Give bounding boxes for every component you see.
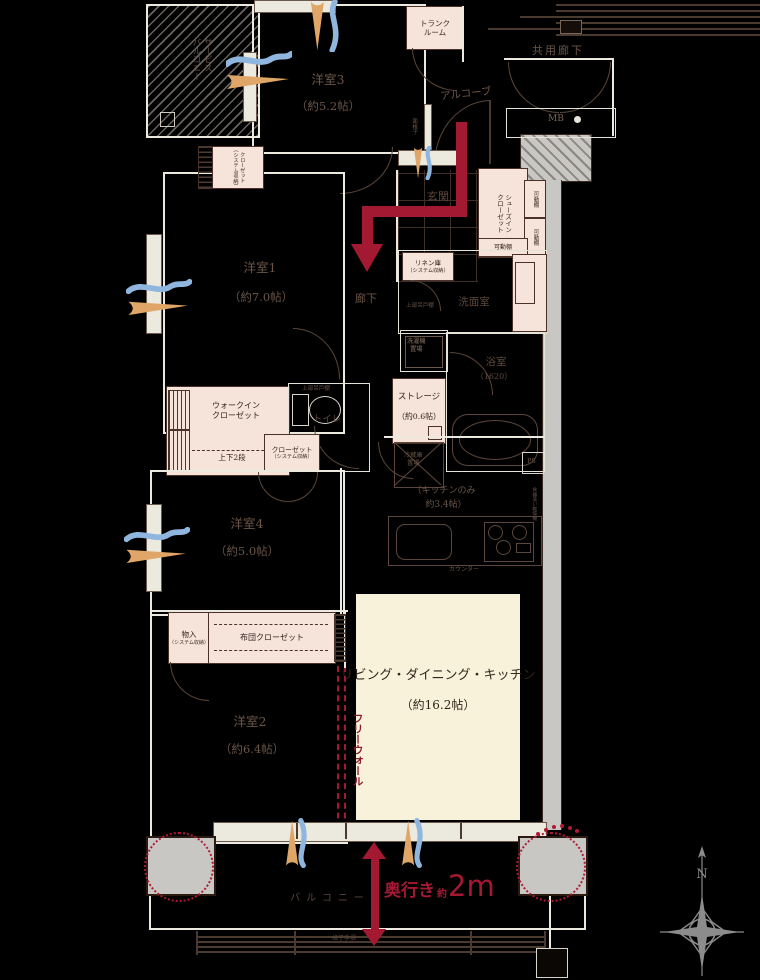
floor-plan: サービス バルコニー 洋室3 （約5.2帖） トランク ルーム 共用廊下 MB … bbox=[0, 0, 760, 980]
ldk-size: （約16.2帖） bbox=[401, 698, 476, 714]
yoshitsu3-size: （約5.2帖） bbox=[296, 99, 360, 114]
bathroom-label: 浴室 bbox=[486, 356, 507, 370]
wic-label-1: ウォークイン bbox=[212, 401, 260, 410]
yoshitsu4-size: （約5.0帖） bbox=[215, 544, 279, 559]
lower-box bbox=[536, 948, 568, 978]
linen-label: リネン庫 bbox=[415, 259, 441, 267]
corridor-line bbox=[556, 34, 760, 36]
wind-arrow-up-icon bbox=[390, 818, 428, 868]
ps-label: PS bbox=[527, 457, 536, 465]
red-dot bbox=[552, 825, 556, 829]
counter-label: カウンター bbox=[449, 566, 479, 574]
wind-arrow-up-icon bbox=[274, 818, 312, 868]
closet-label: クローゼット bbox=[239, 147, 245, 189]
mb-label: MB bbox=[548, 114, 564, 126]
wall bbox=[340, 468, 342, 614]
fridge-label-2: 置場 bbox=[407, 460, 419, 467]
wall bbox=[504, 58, 614, 60]
closet-toilet-side: クローゼット （システム収納） bbox=[264, 434, 320, 472]
kadodana-label: 可動棚 bbox=[532, 229, 539, 246]
corridor-line bbox=[556, 10, 760, 12]
stove-grill bbox=[516, 543, 531, 553]
depth-label-value: 2m bbox=[448, 868, 495, 906]
closet-room3: クローゼット （システム収納） bbox=[212, 146, 264, 189]
closet-sys-label: （システム収納） bbox=[271, 454, 312, 460]
railing-line bbox=[196, 951, 545, 953]
compass-north-label: N bbox=[696, 867, 707, 882]
kitchen-size-line1: （キッチンのみ bbox=[412, 486, 475, 498]
yoshitsu1-name: 洋室1 bbox=[244, 260, 277, 276]
balcony-sliding-doors bbox=[213, 822, 547, 842]
corridor-line bbox=[556, 22, 760, 24]
wall bbox=[462, 6, 464, 62]
pillar-circle-left bbox=[144, 832, 214, 902]
closet-hatch bbox=[198, 146, 213, 189]
wind-arrow-right-icon bbox=[124, 524, 190, 566]
ldk-name: リビング・ダイニング・キッチン bbox=[340, 668, 535, 685]
genkan-label: 玄関 bbox=[427, 190, 449, 204]
kadodana-label: 可動棚 bbox=[532, 191, 539, 208]
wic-shelf-1 bbox=[168, 390, 190, 430]
corridor-line bbox=[520, 16, 760, 18]
yoshitsu3-door-arc bbox=[340, 147, 393, 194]
jogedan-label: 上下2段 bbox=[218, 453, 245, 463]
futon-dash-1 bbox=[214, 624, 328, 625]
storage-label: ストレージ bbox=[398, 392, 440, 402]
red-dot bbox=[575, 829, 579, 833]
kyoyo-roka-label: 共用廊下 bbox=[532, 44, 584, 58]
fridge-label: 冷蔵庫 置場 bbox=[404, 452, 423, 468]
railing-tick bbox=[470, 931, 472, 955]
trunk-room-label-2: ルーム bbox=[424, 28, 446, 37]
red-dot bbox=[536, 832, 540, 836]
kitchen-sink bbox=[396, 524, 452, 560]
depth-arrow-head-up bbox=[362, 842, 386, 859]
mb-dot bbox=[574, 116, 581, 123]
monoire-box: 物入 （システム収納） bbox=[168, 612, 210, 664]
linen-sys-label: （システム収納） bbox=[407, 268, 448, 274]
washroom-label: 洗面室 bbox=[458, 296, 490, 310]
balcony-label: バルコニー bbox=[290, 892, 370, 905]
wall bbox=[549, 894, 551, 950]
stove-burner bbox=[488, 525, 503, 540]
yoshitsu1-size: （約7.0帖） bbox=[229, 290, 293, 305]
service-balcony-label: サービス バルコニー bbox=[186, 38, 216, 108]
laundry-label-2: 置場 bbox=[410, 346, 422, 353]
vanity-mirror bbox=[515, 262, 535, 304]
free-wall-label: フリーウォール bbox=[350, 694, 364, 806]
slider-divider bbox=[345, 823, 347, 839]
entry-arrow-elbow bbox=[362, 206, 467, 217]
wic-shelf-2 bbox=[168, 430, 190, 472]
genkan-door-leaf bbox=[489, 100, 491, 164]
balcony-edge bbox=[149, 894, 151, 930]
monoire-sys-label: （システム収納） bbox=[169, 640, 209, 646]
storage-size: （約0.6帖） bbox=[397, 412, 441, 421]
corridor-line bbox=[556, 4, 760, 6]
yoshitsu2-name: 洋室2 bbox=[234, 714, 267, 730]
closet-sys-label: （システム収納） bbox=[232, 147, 238, 189]
entry-arrow-head bbox=[351, 244, 383, 272]
trunk-room: トランク ルーム bbox=[406, 6, 464, 50]
railing-tick bbox=[196, 931, 198, 955]
sic-label-1: シューズイン bbox=[504, 194, 511, 233]
shaft-block bbox=[520, 134, 592, 182]
red-dot bbox=[560, 824, 564, 828]
tsuridana-label-toilet: 上部吊戸棚 bbox=[302, 386, 330, 393]
wind-arrow-right-icon bbox=[226, 48, 292, 92]
closet-hatch-strip bbox=[334, 614, 346, 662]
closet-label: クローゼット bbox=[272, 446, 313, 454]
wind-arrow-right-icon bbox=[126, 276, 192, 318]
railing-line bbox=[196, 946, 545, 948]
fridge-label-1: 冷蔵庫 bbox=[404, 452, 423, 459]
corridor-line bbox=[488, 28, 760, 30]
yoshitsu3-name: 洋室3 bbox=[312, 72, 345, 88]
roka-label: 廊下 bbox=[355, 292, 377, 306]
laundry-label-1: 洗濯機 bbox=[407, 338, 426, 345]
drain-box bbox=[160, 112, 175, 127]
kitchen-size-line2: 約3.4帖） bbox=[425, 500, 466, 512]
wind-arrow-down-icon bbox=[294, 0, 350, 52]
laundry-label: 洗濯機 置場 bbox=[407, 338, 426, 354]
stove-burner bbox=[512, 525, 527, 540]
linen-box: リネン庫 （システム収納） bbox=[402, 252, 454, 281]
window bbox=[424, 104, 432, 150]
wic-label-2: クローゼット bbox=[212, 411, 260, 420]
red-dot bbox=[544, 828, 548, 832]
koshi-tesuri-label: 格子手摺 bbox=[332, 935, 356, 943]
futon-dash-2 bbox=[214, 650, 328, 651]
depth-label-okuyuki: 奥行き bbox=[384, 880, 435, 902]
entry-arrow-shaft bbox=[456, 122, 467, 214]
bathroom-size: （1620） bbox=[476, 372, 512, 382]
stove-burner bbox=[496, 540, 511, 555]
bathtub-inner bbox=[459, 420, 531, 460]
corridor-meter-box bbox=[560, 20, 582, 34]
wall bbox=[384, 436, 544, 438]
entry-double-door-right bbox=[560, 62, 611, 113]
sic-label-2: クローゼット bbox=[495, 194, 502, 233]
monoire-label: 物入 bbox=[181, 630, 196, 639]
tsuridana-label-washroom: 上部吊戸棚 bbox=[406, 303, 434, 310]
pillar-circle-right bbox=[516, 832, 586, 902]
service-balcony-label-1: サービス bbox=[202, 38, 211, 108]
entry-arrow-stub bbox=[362, 206, 373, 246]
futon-closet: 布団クローゼット bbox=[208, 612, 336, 664]
service-balcony-label-2: バルコニー bbox=[191, 38, 200, 108]
koshimado-label: 面格子 bbox=[410, 106, 417, 146]
yoshitsu4-name: 洋室4 bbox=[231, 516, 264, 532]
red-dot bbox=[568, 826, 572, 830]
balcony-edge bbox=[584, 894, 586, 930]
toilet-label: トイレ bbox=[313, 414, 342, 426]
trunk-room-label-1: トランク bbox=[420, 19, 450, 28]
depth-arrow-shaft bbox=[371, 856, 379, 932]
wind-arrow-down-small-icon bbox=[408, 146, 434, 180]
entry-double-door-left bbox=[508, 62, 559, 113]
depth-label-yaku: 約 bbox=[437, 888, 447, 901]
kadodana-box-1: 可動棚 bbox=[524, 180, 546, 218]
railing-tick bbox=[294, 931, 296, 955]
toilet-tank bbox=[292, 394, 309, 426]
compass-icon: N bbox=[652, 846, 752, 978]
depth-arrow-head-down bbox=[362, 929, 386, 946]
futon-closet-label: 布団クローゼット bbox=[240, 633, 304, 643]
slider-divider bbox=[460, 823, 462, 839]
yoshitsu2-size: （約6.4帖） bbox=[220, 742, 284, 757]
